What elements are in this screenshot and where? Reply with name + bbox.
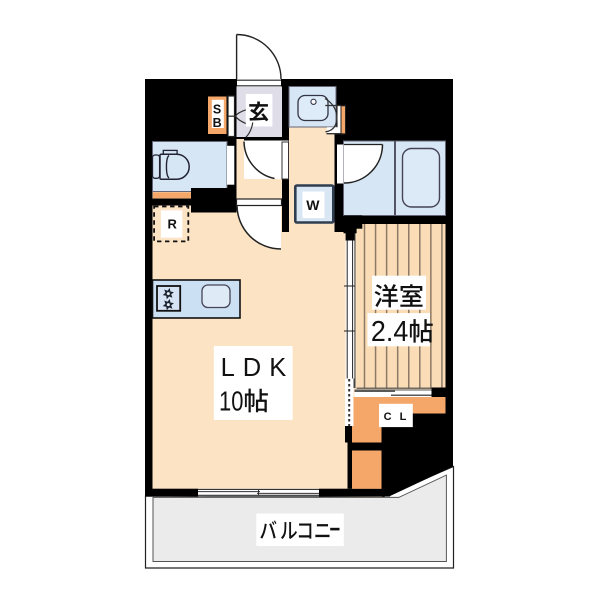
svg-text:W: W — [306, 197, 320, 213]
svg-text:R: R — [168, 217, 178, 232]
svg-text:10: 10 — [219, 385, 243, 416]
svg-text:B: B — [213, 116, 222, 130]
svg-text:CL: CL — [384, 411, 415, 423]
svg-text:S: S — [213, 102, 221, 116]
svg-text:2.4: 2.4 — [371, 316, 408, 348]
svg-text:LDK: LDK — [221, 354, 295, 382]
